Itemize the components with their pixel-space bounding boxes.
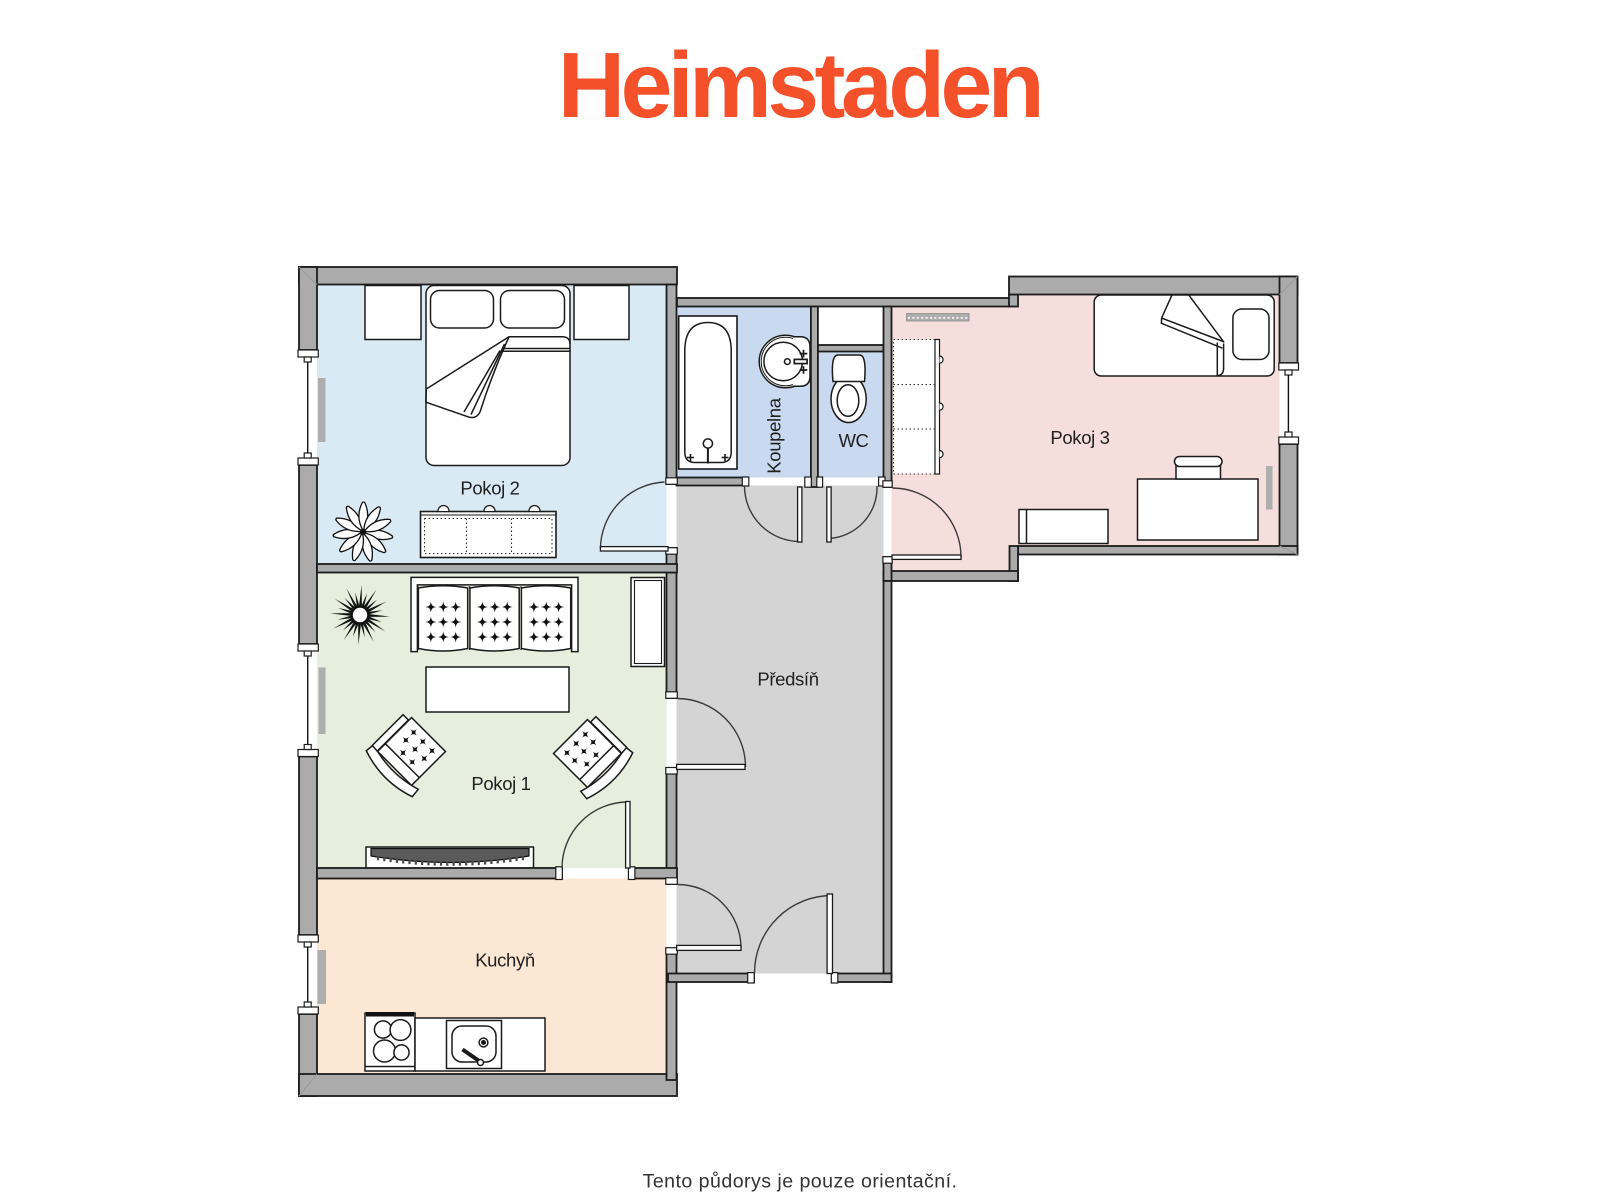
svg-text:Heimstaden: Heimstaden bbox=[558, 33, 1040, 137]
svg-text:WC: WC bbox=[838, 430, 868, 451]
svg-text:Pokoj 3: Pokoj 3 bbox=[1050, 427, 1109, 448]
svg-text:Předsíň: Předsíň bbox=[757, 669, 818, 690]
svg-text:Tento půdorys je pouze orienta: Tento půdorys je pouze orientační. bbox=[643, 1171, 958, 1193]
svg-text:Pokoj 1: Pokoj 1 bbox=[471, 773, 530, 794]
svg-text:Pokoj 2: Pokoj 2 bbox=[460, 478, 519, 499]
svg-text:Koupelna: Koupelna bbox=[764, 397, 785, 473]
svg-text:Kuchyň: Kuchyň bbox=[475, 950, 535, 971]
